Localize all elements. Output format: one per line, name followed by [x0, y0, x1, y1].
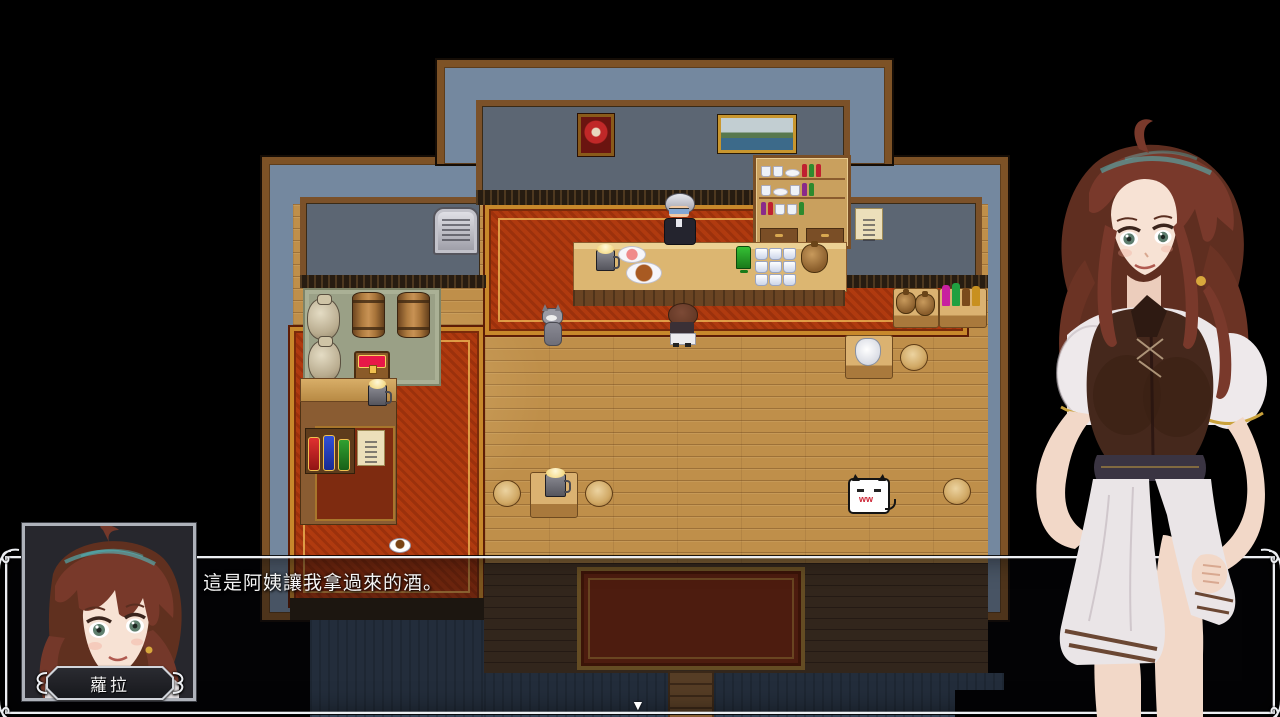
stool: [943, 478, 971, 505]
speaker-nameplate: 蘿拉: [46, 666, 174, 700]
wall-plaque[interactable]: [433, 207, 479, 255]
stool: [900, 344, 928, 371]
clay-jar: [307, 298, 340, 340]
ham-plate: [618, 246, 646, 263]
wall-note[interactable]: [855, 208, 883, 240]
frame-corner-flourish: [0, 698, 21, 717]
gray-cat-npc[interactable]: [541, 308, 563, 346]
landscape-painting: [718, 115, 796, 153]
grain-sack: [801, 244, 828, 273]
beer-mug: [368, 385, 387, 406]
barrel: [352, 292, 385, 338]
continue-arrow-icon[interactable]: ▼: [631, 697, 645, 713]
sausage-plate: [626, 262, 662, 284]
player-character: [662, 303, 702, 347]
bar-counter-front: [573, 290, 845, 306]
small-sack: [915, 294, 935, 316]
cup-stacks: [755, 248, 796, 286]
stool: [585, 480, 613, 507]
menu-note[interactable]: [357, 430, 385, 466]
beer-mug: [596, 250, 615, 271]
milk-jug: [855, 338, 881, 366]
stool: [493, 480, 521, 507]
wall-base-trim-left: [300, 275, 486, 288]
barrel: [397, 292, 430, 338]
game-screen: ᴡᴡ 這是阿姨讓我拿過來的酒。: [0, 0, 1280, 717]
small-sack: [896, 292, 916, 314]
bartender-npc[interactable]: [660, 193, 698, 245]
heroine-standing-art: [1005, 115, 1280, 717]
green-goblet: [736, 246, 751, 269]
wine-bottles: [942, 284, 984, 306]
speaker-name: 蘿拉: [46, 666, 174, 700]
clay-jar: [308, 340, 341, 382]
king-portrait-painting: [578, 114, 614, 156]
frame-corner-flourish: [0, 546, 21, 572]
teacup: [389, 538, 411, 553]
dish-cabinet: [753, 155, 851, 249]
cat-mouth: ᴡᴡ: [859, 496, 877, 502]
beer-mug: [545, 474, 566, 497]
white-cat-npc[interactable]: ᴡᴡ: [848, 478, 890, 514]
dialogue-text: 這是阿姨讓我拿過來的酒。: [203, 568, 443, 595]
bottle-display[interactable]: [305, 428, 355, 474]
